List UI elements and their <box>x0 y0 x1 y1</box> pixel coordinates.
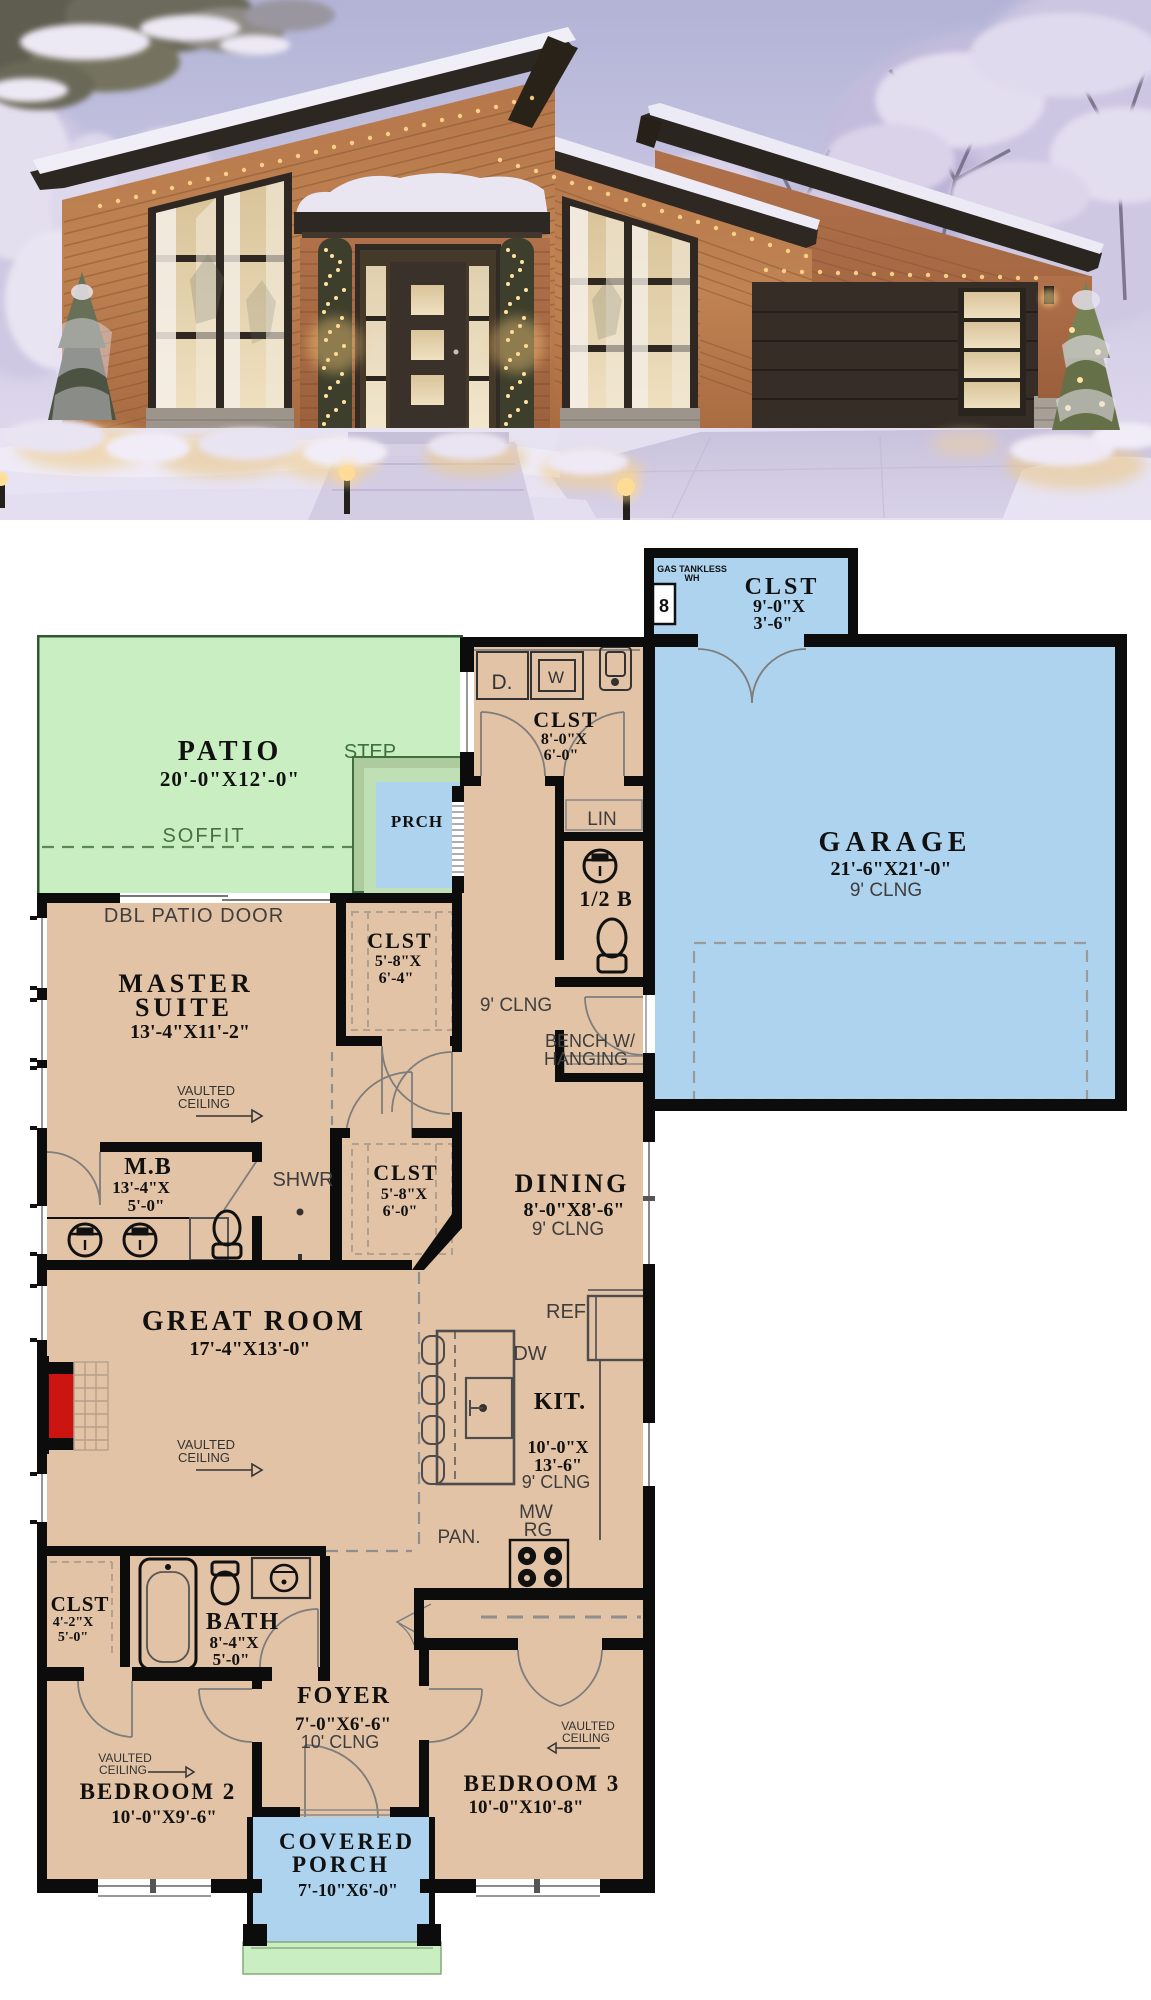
svg-text:RG: RG <box>524 1520 553 1541</box>
svg-text:WH: WH <box>685 573 700 583</box>
svg-text:8: 8 <box>659 596 669 616</box>
svg-text:BATH: BATH <box>206 1609 280 1635</box>
svg-text:3'-6": 3'-6" <box>754 613 793 633</box>
svg-text:D.: D. <box>492 671 513 694</box>
svg-text:SOFFIT: SOFFIT <box>162 825 245 847</box>
svg-text:DINING: DINING <box>515 1169 630 1198</box>
svg-text:5'-0": 5'-0" <box>213 1650 250 1669</box>
svg-text:SUITE: SUITE <box>135 993 233 1022</box>
svg-text:10'-0"X: 10'-0"X <box>528 1437 589 1457</box>
svg-text:FOYER: FOYER <box>297 1683 391 1709</box>
svg-text:BENCH W/: BENCH W/ <box>545 1031 635 1051</box>
svg-text:GARAGE: GARAGE <box>819 827 972 858</box>
svg-text:6'-0": 6'-0" <box>544 747 579 764</box>
svg-text:CEILING: CEILING <box>178 1450 230 1465</box>
svg-text:1/2 B: 1/2 B <box>579 886 632 911</box>
svg-text:CLST: CLST <box>373 1160 438 1185</box>
svg-text:9' CLNG: 9' CLNG <box>522 1472 590 1492</box>
svg-text:13'-4"X11'-2": 13'-4"X11'-2" <box>130 1021 250 1043</box>
svg-text:7'-10"X6'-0": 7'-10"X6'-0" <box>298 1880 398 1900</box>
svg-text:17'-4"X13'-0": 17'-4"X13'-0" <box>189 1338 310 1360</box>
svg-text:W: W <box>548 668 564 687</box>
svg-text:CEILING: CEILING <box>99 1763 147 1777</box>
svg-text:BEDROOM 3: BEDROOM 3 <box>464 1771 621 1796</box>
svg-text:CEILING: CEILING <box>178 1096 230 1111</box>
svg-text:HANGING: HANGING <box>544 1049 628 1069</box>
svg-text:M.B: M.B <box>124 1154 172 1180</box>
svg-text:10'-0"X9'-6": 10'-0"X9'-6" <box>111 1807 217 1828</box>
svg-text:5'-0": 5'-0" <box>58 1630 88 1645</box>
svg-text:CLST: CLST <box>51 1592 110 1616</box>
svg-text:GREAT ROOM: GREAT ROOM <box>142 1306 366 1337</box>
svg-text:CLST: CLST <box>533 707 598 732</box>
svg-text:PATIO: PATIO <box>178 736 283 767</box>
svg-text:5'-0": 5'-0" <box>128 1196 165 1215</box>
svg-text:6'-4": 6'-4" <box>379 970 414 987</box>
svg-text:REF: REF <box>546 1301 586 1323</box>
svg-text:DW: DW <box>513 1343 546 1365</box>
svg-text:CLST: CLST <box>367 928 432 953</box>
svg-text:5'-8"X: 5'-8"X <box>381 1186 428 1203</box>
svg-text:PAN.: PAN. <box>438 1527 481 1548</box>
svg-text:CEILING: CEILING <box>562 1731 610 1745</box>
svg-text:8'-0"X: 8'-0"X <box>541 731 588 748</box>
svg-text:BEDROOM 2: BEDROOM 2 <box>80 1779 237 1804</box>
svg-text:SHWR: SHWR <box>272 1169 333 1191</box>
svg-text:10' CLNG: 10' CLNG <box>301 1732 379 1752</box>
svg-text:PORCH: PORCH <box>292 1852 390 1877</box>
svg-text:13'-4"X: 13'-4"X <box>112 1178 170 1197</box>
svg-text:STEP: STEP <box>344 741 396 763</box>
svg-text:9' CLNG: 9' CLNG <box>850 880 922 901</box>
svg-text:10'-0"X10'-8": 10'-0"X10'-8" <box>468 1797 583 1818</box>
svg-text:KIT.: KIT. <box>534 1389 586 1415</box>
svg-text:20'-0"X12'-0": 20'-0"X12'-0" <box>160 767 300 791</box>
svg-text:9' CLNG: 9' CLNG <box>532 1219 604 1240</box>
svg-text:21'-6"X21'-0": 21'-6"X21'-0" <box>830 858 951 880</box>
svg-text:5'-8"X: 5'-8"X <box>375 953 422 970</box>
svg-text:6'-0": 6'-0" <box>383 1203 418 1220</box>
svg-text:COVERED: COVERED <box>279 1829 415 1854</box>
svg-text:LIN: LIN <box>587 809 617 830</box>
svg-text:DBL PATIO DOOR: DBL PATIO DOOR <box>104 905 284 927</box>
svg-text:9' CLNG: 9' CLNG <box>480 995 552 1016</box>
svg-text:4'-2"X: 4'-2"X <box>53 1615 93 1630</box>
svg-text:PRCH: PRCH <box>391 812 443 831</box>
svg-text:8'-0"X8'-6": 8'-0"X8'-6" <box>523 1199 624 1221</box>
